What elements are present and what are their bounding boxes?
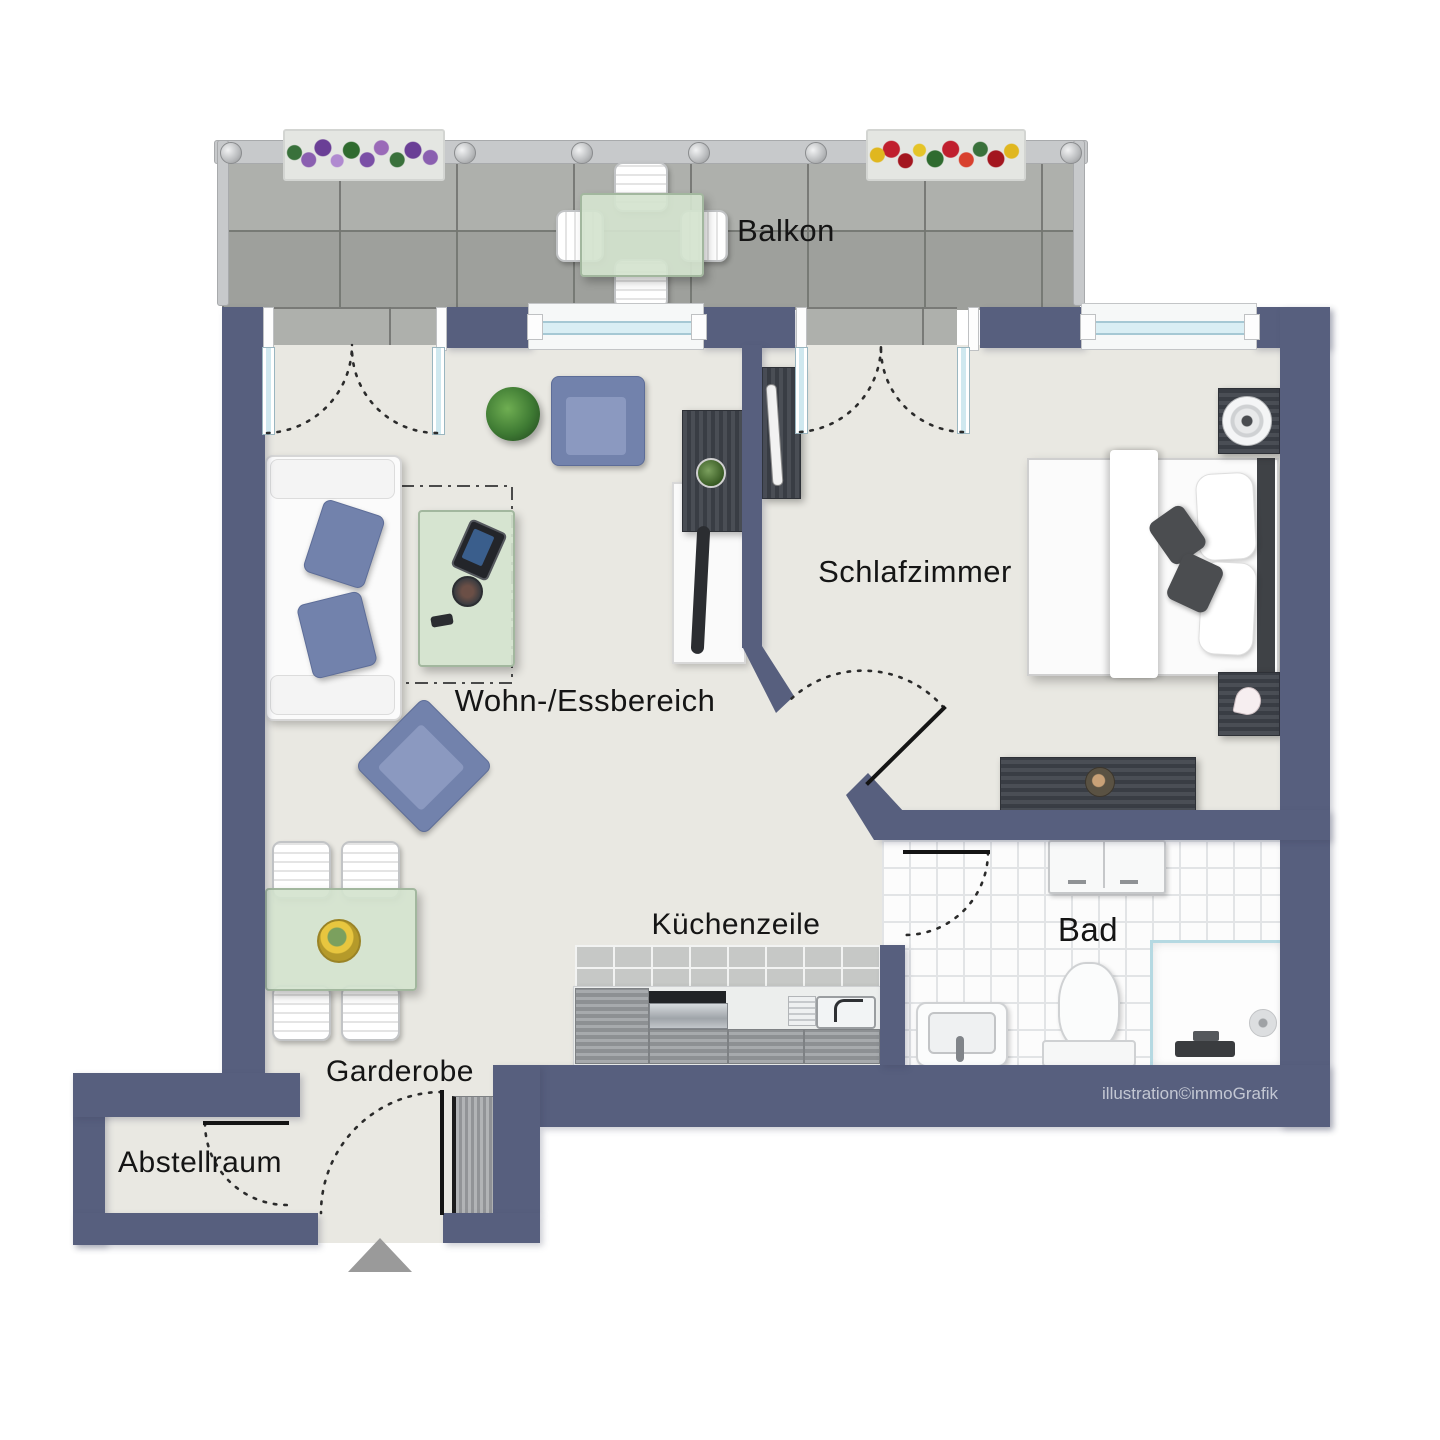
floorplan-canvas: Balkon Schlafzimmer Wohn-/Essbereich Küc… — [0, 0, 1440, 1440]
balcony-door-leaf — [957, 347, 970, 434]
window-jamb — [691, 314, 707, 340]
window-jamb — [1080, 314, 1096, 340]
washing-machine-divider — [1103, 842, 1105, 888]
armchair-seat — [566, 397, 626, 455]
bed-pillow — [1195, 472, 1257, 562]
sofa-armrest — [270, 675, 395, 715]
wall-top — [980, 307, 1083, 348]
nightstand-lamp — [1222, 396, 1272, 446]
window-glass — [541, 321, 691, 335]
balcony-door-leaf — [795, 347, 808, 434]
kitchen-drawer — [728, 1029, 804, 1064]
door-jamb — [796, 307, 807, 351]
balcony-door-leaf — [432, 347, 445, 435]
wall-top — [445, 307, 530, 348]
kitchen-drawer — [804, 1029, 880, 1064]
washer-handle — [1120, 880, 1138, 884]
wall-bath-top — [876, 810, 1330, 840]
kitchen-drawer — [649, 1029, 728, 1064]
room-label-garderobe: Garderobe — [326, 1055, 474, 1089]
bed-duvet-fold — [1110, 450, 1158, 678]
dining-chair — [341, 985, 400, 1041]
railing-post — [454, 142, 476, 164]
balcony-door-threshold-living — [272, 307, 438, 347]
railing-post — [688, 142, 710, 164]
room-label-abstellraum: Abstellraum — [118, 1146, 282, 1180]
wall-hall-right — [493, 1065, 540, 1213]
armchair — [551, 376, 645, 466]
wall-left — [222, 307, 265, 1075]
railing-post — [1060, 142, 1082, 164]
wall-right — [1280, 307, 1330, 1127]
wall-partition — [742, 345, 762, 648]
wall-storage-top — [73, 1073, 300, 1117]
oven-controls — [649, 991, 726, 1003]
window-glass — [1094, 321, 1244, 335]
flower-box-red — [866, 129, 1026, 181]
fruit-bowl — [317, 919, 361, 963]
shower — [1150, 940, 1286, 1071]
watermark: illustration©immoGrafik — [1102, 1084, 1278, 1104]
plant — [486, 387, 540, 441]
entrance-arrow — [348, 1238, 412, 1272]
shower-drain — [1249, 1009, 1277, 1037]
room-label-balkon: Balkon — [737, 213, 835, 249]
bathroom-sink — [916, 1002, 1008, 1067]
wardrobe — [452, 1096, 498, 1215]
kitchen-faucet — [834, 999, 863, 1022]
washer-handle — [1068, 880, 1086, 884]
sink-drainboard — [788, 996, 816, 1026]
balcony-railing-left — [217, 140, 229, 306]
balcony-door-threshold-bedroom — [805, 307, 957, 347]
sink-faucet — [956, 1036, 964, 1062]
shower-fixture — [1175, 1041, 1235, 1057]
toilet-tank — [1042, 1040, 1136, 1067]
room-label-kuechenzeile: Küchenzeile — [652, 908, 821, 942]
oven-door — [649, 1003, 728, 1029]
room-label-schlafzimmer: Schlafzimmer — [818, 554, 1012, 590]
railing-post — [571, 142, 593, 164]
wall-storage-bottom — [73, 1213, 318, 1245]
cup — [452, 576, 483, 607]
railing-post — [805, 142, 827, 164]
balcony-table — [580, 193, 704, 277]
window-bedroom — [1081, 303, 1257, 350]
door-jamb — [263, 307, 274, 351]
dining-chair — [272, 985, 331, 1041]
armchair-seat — [377, 724, 465, 812]
kitchen-cabinet — [575, 988, 649, 1064]
dresser-plant — [1085, 767, 1115, 797]
balcony-door-leaf — [262, 347, 275, 435]
window-jamb — [527, 314, 543, 340]
plant-small — [696, 458, 726, 488]
wall-entrance-side — [443, 1213, 540, 1243]
bed-headboard — [1257, 458, 1275, 672]
room-label-bad: Bad — [1058, 911, 1118, 949]
door-jamb — [436, 307, 447, 351]
door-jamb — [968, 307, 979, 351]
kitchen-backsplash — [575, 945, 880, 988]
railing-post — [220, 142, 242, 164]
toilet-bowl — [1058, 962, 1120, 1050]
washing-machine — [1048, 840, 1166, 894]
shower-fixture-knob — [1193, 1031, 1219, 1041]
wall-top — [700, 307, 795, 348]
window-jamb — [1244, 314, 1260, 340]
balcony-railing-right — [1073, 140, 1085, 306]
flower-box-violet — [283, 129, 445, 181]
tablet-screen — [461, 528, 494, 566]
sofa-armrest — [270, 459, 395, 499]
window-living — [528, 303, 704, 350]
wall-bath-left — [880, 945, 905, 1065]
room-label-wohn-essbereich: Wohn-/Essbereich — [455, 683, 716, 719]
